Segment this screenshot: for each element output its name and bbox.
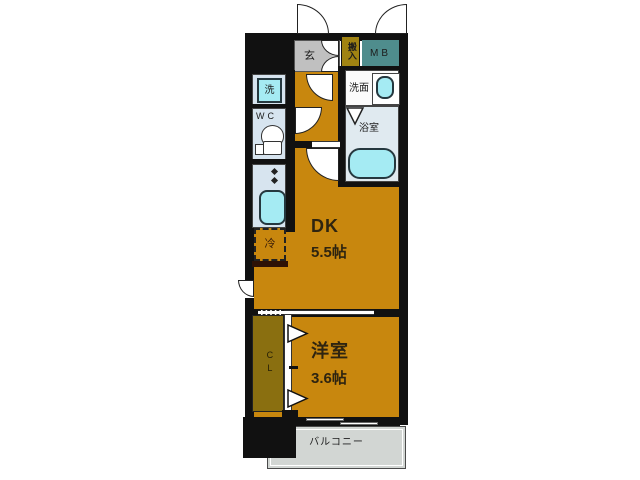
wall-hall-dk bbox=[288, 141, 312, 148]
washroom-label: 洗面 bbox=[349, 83, 369, 94]
genkan-label: 玄 bbox=[304, 50, 315, 62]
floor-plan: バルコニー 玄 搬入 MB 洗面 浴室 bbox=[0, 0, 640, 480]
balcony-window-pane bbox=[340, 422, 378, 425]
kitchen bbox=[252, 164, 286, 228]
vanity-counter bbox=[372, 73, 400, 105]
hall-dk-doorway bbox=[312, 141, 340, 148]
vanity-sink-icon bbox=[376, 76, 394, 99]
closet: CL bbox=[252, 315, 284, 412]
laundry-space: 洗 bbox=[252, 74, 286, 106]
closet-label: CL bbox=[264, 350, 274, 376]
bathtub-icon bbox=[348, 148, 396, 179]
bathroom-label: 浴室 bbox=[359, 123, 379, 134]
dk-room-label: DK 5.5帖 bbox=[311, 216, 347, 262]
fridge-label: 冷 bbox=[256, 238, 284, 250]
hannyu-label: 搬入 bbox=[346, 42, 356, 60]
bathroom: 浴室 bbox=[345, 106, 399, 182]
wall-right bbox=[399, 33, 408, 425]
dk-size-label: 5.5帖 bbox=[311, 241, 347, 262]
stove-burner-icon bbox=[271, 168, 278, 175]
left-door-arc bbox=[238, 280, 254, 297]
wall-block-bottom-left bbox=[243, 417, 296, 458]
meter-box: MB bbox=[362, 40, 399, 68]
meter-box-label: MB bbox=[362, 48, 399, 59]
western-room-label: 洋室 3.6帖 bbox=[311, 337, 349, 388]
partition-sliding-door bbox=[284, 310, 374, 315]
fridge-space: 冷 bbox=[254, 228, 286, 261]
laundry-label: 洗 bbox=[259, 85, 280, 96]
toilet-icon bbox=[253, 109, 287, 161]
wall-left-column bbox=[286, 70, 295, 232]
kitchen-sink-icon bbox=[259, 190, 286, 225]
kitchen-counter-edge bbox=[252, 261, 288, 267]
mb-door-arc bbox=[375, 4, 407, 34]
dk-label: DK bbox=[311, 216, 347, 237]
entrance-door-arc bbox=[297, 4, 329, 34]
stove-burner-icon bbox=[271, 177, 278, 184]
closet-door-arrows-icon bbox=[286, 323, 310, 411]
balcony-window-pane bbox=[306, 418, 344, 421]
western-size-label: 3.6帖 bbox=[311, 367, 349, 388]
washroom: 洗面 bbox=[345, 70, 399, 106]
washer-icon: 洗 bbox=[257, 78, 282, 103]
western-label: 洋室 bbox=[311, 337, 349, 363]
wc-room: WC bbox=[252, 108, 286, 160]
